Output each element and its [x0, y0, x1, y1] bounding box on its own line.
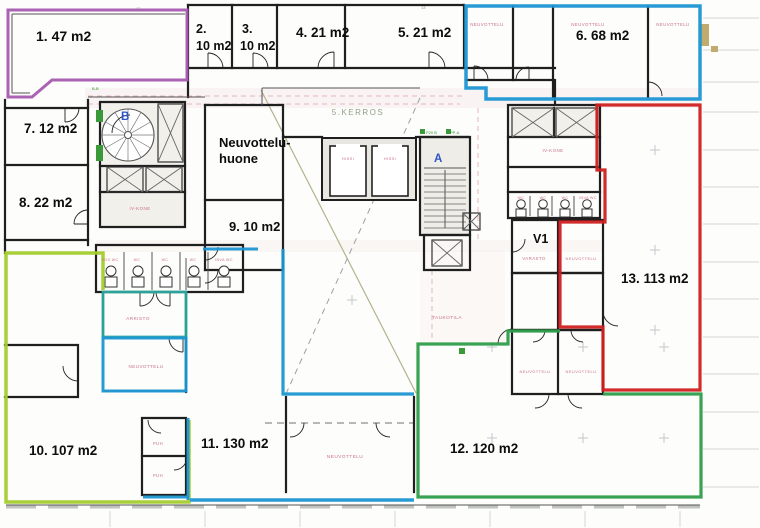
- tiny-annotation-green: P20 B: [426, 130, 437, 135]
- area-3a: 3.: [242, 22, 252, 36]
- toilet-icon: [189, 266, 199, 276]
- elevator-door-gap: [336, 144, 360, 148]
- toilet-icon: [539, 200, 548, 209]
- room-label-sos-wc: SOS.WC: [102, 258, 119, 262]
- tiny-annotation-gray: 13: [421, 5, 426, 10]
- stair-letter-a: A: [434, 153, 442, 165]
- room-label-wc: WC: [190, 258, 197, 262]
- room-label-neuvottelu: NEUVOTTELU: [571, 22, 605, 27]
- room-label-varasto: VARASTO: [522, 256, 546, 261]
- floor-number-label: 5.KERROS: [332, 108, 384, 117]
- tiny-annotation-green: B-B: [92, 86, 99, 91]
- room-label-iv-kone: IV-KONE: [542, 148, 563, 153]
- floor-plan-page: 1. 47 m22.10 m23.10 m24. 21 m25. 21 m26.…: [0, 0, 760, 528]
- area-13: 13. 113 m2: [621, 271, 689, 286]
- room-label-wc: WC: [162, 258, 169, 262]
- toilet-tank-icon: [105, 277, 117, 287]
- area-6: 6. 68 m2: [576, 28, 629, 43]
- toilet-icon: [517, 200, 526, 209]
- green-marker-bit: [420, 129, 425, 134]
- room-label-neuvottelu: NEUVOTTELU: [327, 454, 363, 460]
- toilet-tank-icon: [160, 277, 172, 287]
- room-label-hissi: HISSI: [342, 156, 354, 161]
- area-11: 11. 130 m2: [201, 436, 269, 451]
- tiny-annotation-gray: 13: [136, 6, 141, 11]
- toilet-tank-icon: [188, 277, 200, 287]
- elevator-car-icon: [372, 146, 408, 196]
- green-marker-bit: [96, 110, 103, 122]
- green-marker-bit: [459, 348, 465, 354]
- area-2a: 2.: [196, 22, 206, 36]
- elevator-car-icon: [330, 146, 366, 196]
- room-label-neuvottelu: NEUVOTTELU: [520, 369, 551, 374]
- toilet-tank-icon: [582, 209, 592, 217]
- room-label-hissi: HISSI: [384, 156, 396, 161]
- area-4: 4. 21 m2: [296, 25, 349, 40]
- toilet-icon: [561, 200, 570, 209]
- room-label-taukotila: TAUKOTILA: [432, 315, 462, 321]
- area-12: 12. 120 m2: [450, 441, 518, 456]
- stair-letter-b: B: [121, 111, 129, 123]
- room-label-wc: WC: [518, 196, 525, 200]
- toilet-icon: [106, 266, 116, 276]
- room-v1: V1: [533, 232, 548, 246]
- room-label-neuvottelu: NEUVOTTELU: [129, 364, 164, 369]
- spiral-center: [125, 132, 132, 139]
- room-label-wc: WC: [134, 258, 141, 262]
- room-label-wc: WC: [562, 196, 569, 200]
- tiny-annotation-green: PP-A: [450, 130, 460, 135]
- toilet-tank-icon: [218, 277, 230, 287]
- tape-fragment: [711, 46, 718, 52]
- room-label-neuvottelu: NEUVOTTELU: [566, 369, 597, 374]
- room-label-neuvottelu: NEUVOTTELU: [656, 22, 690, 27]
- room-label-iv-kone: IV-KONE: [129, 206, 150, 211]
- room-label-puh: PUH: [153, 441, 163, 446]
- meeting-room-line1: Neuvottelu-: [219, 135, 291, 150]
- room-label-inva-wc: INVA WC: [579, 196, 597, 200]
- floor-plan-canvas: 1. 47 m22.10 m23.10 m24. 21 m25. 21 m26.…: [0, 0, 760, 528]
- room-label-puh: PUH: [153, 473, 163, 478]
- elevator-door-gap: [378, 144, 402, 148]
- toilet-icon: [161, 266, 171, 276]
- toilet-tank-icon: [516, 209, 526, 217]
- toilet-tank-icon: [560, 209, 570, 217]
- area-8: 8. 22 m2: [19, 195, 72, 210]
- meeting-room-line2: huone: [219, 151, 258, 166]
- area-2b: 10 m2: [196, 39, 231, 53]
- toilet-icon: [219, 266, 229, 276]
- room-label-inva-wc: INVA WC: [215, 258, 233, 262]
- room-label-neuvottelu: NEUVOTTELU: [470, 22, 504, 27]
- area-1: 1. 47 m2: [36, 28, 91, 44]
- area-10: 10. 107 m2: [29, 443, 97, 458]
- toilet-icon: [133, 266, 143, 276]
- toilet-tank-icon: [538, 209, 548, 217]
- toilet-icon: [583, 200, 592, 209]
- area-5: 5. 21 m2: [398, 25, 451, 40]
- room-label-arkisto: ARKISTO: [126, 316, 150, 322]
- area-9: 9. 10 m2: [229, 219, 280, 234]
- area-3b: 10 m2: [240, 39, 275, 53]
- room-label-neuvottelu: NEUVOTTELU: [566, 256, 597, 261]
- room-label-wc: WC: [540, 196, 547, 200]
- toilet-tank-icon: [132, 277, 144, 287]
- area-7: 7. 12 m2: [24, 121, 77, 136]
- green-marker-bit: [96, 145, 103, 161]
